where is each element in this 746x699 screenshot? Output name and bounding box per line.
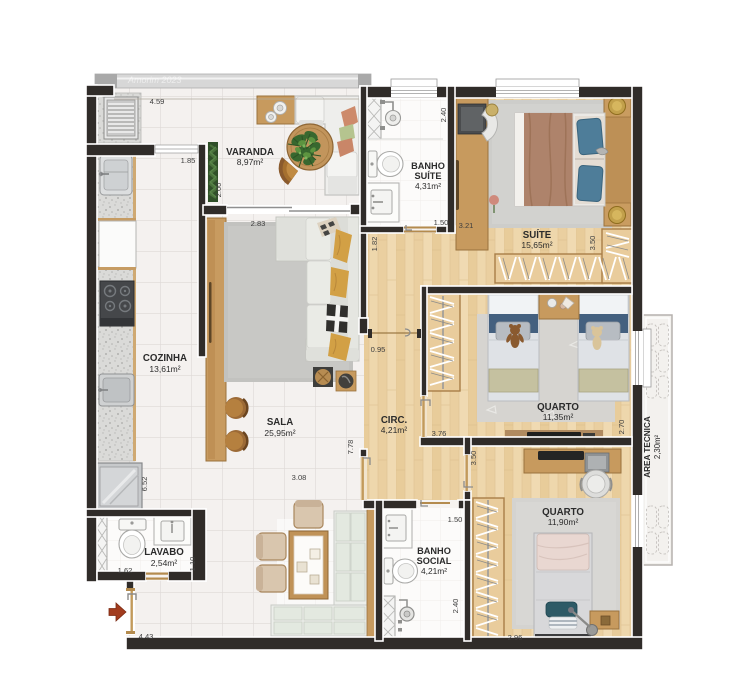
svg-text:SOCIAL: SOCIAL <box>417 556 452 566</box>
svg-text:2.40: 2.40 <box>451 599 460 614</box>
svg-text:2,30m²: 2,30m² <box>653 434 662 459</box>
svg-text:6.52: 6.52 <box>140 477 149 492</box>
svg-text:15,65m²: 15,65m² <box>521 240 552 250</box>
svg-text:2.40: 2.40 <box>439 108 448 123</box>
svg-text:LAVABO: LAVABO <box>144 547 184 558</box>
svg-text:SUÍTE: SUÍTE <box>414 170 441 181</box>
svg-text:3.50: 3.50 <box>588 236 597 251</box>
svg-text:2.96: 2.96 <box>508 633 523 642</box>
svg-text:1.82: 1.82 <box>370 237 379 252</box>
svg-text:3.21: 3.21 <box>459 221 474 230</box>
svg-text:1.10: 1.10 <box>188 557 197 572</box>
svg-text:8,97m²: 8,97m² <box>237 157 264 167</box>
svg-text:13,61m²: 13,61m² <box>149 364 180 374</box>
svg-text:3.50: 3.50 <box>469 451 478 466</box>
svg-text:4,21m²: 4,21m² <box>421 566 447 576</box>
svg-text:SALA: SALA <box>267 417 293 428</box>
svg-text:2.00: 2.00 <box>214 183 223 198</box>
svg-text:4.43: 4.43 <box>139 632 154 641</box>
svg-text:1.85: 1.85 <box>181 156 196 165</box>
svg-text:BANHO: BANHO <box>417 546 451 556</box>
svg-text:0.95: 0.95 <box>371 345 386 354</box>
svg-text:2,54m²: 2,54m² <box>151 558 178 568</box>
svg-text:1.50: 1.50 <box>434 218 449 227</box>
svg-text:7.78: 7.78 <box>346 440 355 455</box>
svg-text:BANHO: BANHO <box>411 161 445 171</box>
svg-text:Amorim 2023: Amorim 2023 <box>127 75 182 85</box>
svg-text:1.50: 1.50 <box>448 515 463 524</box>
svg-text:2.70: 2.70 <box>617 420 626 435</box>
svg-text:2.83: 2.83 <box>251 219 266 228</box>
svg-text:11,90m²: 11,90m² <box>548 517 579 527</box>
svg-text:COZINHA: COZINHA <box>143 353 187 364</box>
svg-text:4,31m²: 4,31m² <box>415 181 441 191</box>
svg-text:4.59: 4.59 <box>150 97 165 106</box>
svg-text:4,21m²: 4,21m² <box>381 425 408 435</box>
svg-text:11,35m²: 11,35m² <box>543 412 574 422</box>
svg-text:3.08: 3.08 <box>292 473 307 482</box>
svg-text:25,95m²: 25,95m² <box>264 428 295 438</box>
svg-text:3.76: 3.76 <box>432 429 447 438</box>
svg-text:1.62: 1.62 <box>118 566 133 575</box>
